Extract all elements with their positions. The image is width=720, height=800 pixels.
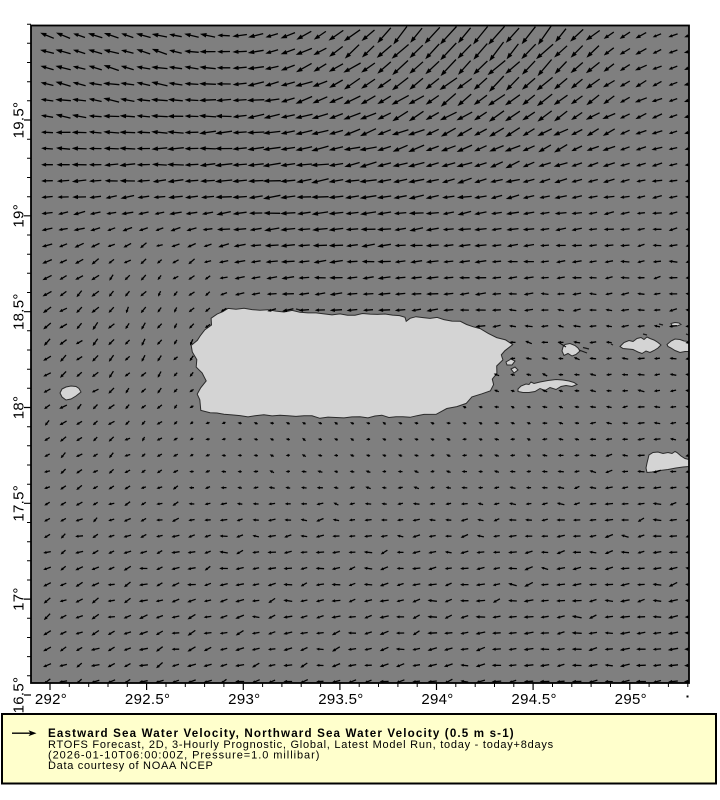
svg-text:19°: 19° (11, 204, 28, 228)
svg-text:Data courtesy of NOAA NCEP: Data courtesy of NOAA NCEP (48, 760, 214, 772)
svg-text:17.5°: 17.5° (11, 485, 28, 522)
svg-text:294°: 294° (421, 691, 453, 708)
svg-text:18.5°: 18.5° (11, 293, 28, 330)
svg-text:293°: 293° (228, 691, 260, 708)
svg-text:293.5°: 293.5° (318, 691, 363, 708)
svg-text:294.5°: 294.5° (511, 691, 556, 708)
svg-text:295°: 295° (615, 691, 647, 708)
svg-text:18°: 18° (11, 396, 28, 420)
svg-text:17°: 17° (11, 587, 28, 611)
svg-text:19.5°: 19.5° (11, 102, 28, 139)
svg-text:292°: 292° (35, 691, 67, 708)
svg-text:16.5°: 16.5° (11, 677, 28, 714)
svg-text:292.5°: 292.5° (125, 691, 170, 708)
